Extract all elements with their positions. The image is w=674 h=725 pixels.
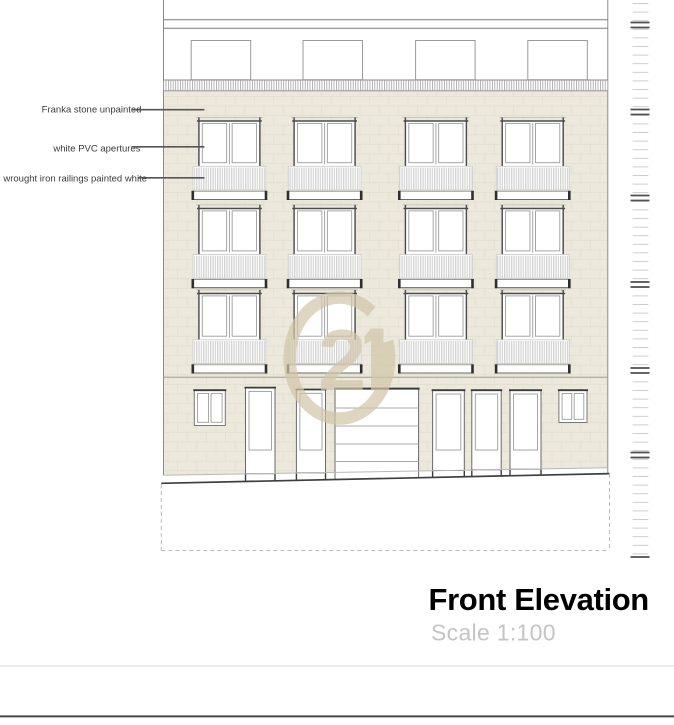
svg-text:2: 2 (318, 313, 366, 409)
svg-text:Front Elevation: Front Elevation (429, 582, 649, 617)
svg-text:Franka stone unpainted: Franka stone unpainted (42, 105, 142, 116)
svg-text:Scale 1:100: Scale 1:100 (431, 620, 556, 646)
svg-text:wrought iron railings painted: wrought iron railings painted white (2, 174, 147, 185)
svg-text:white PVC apertures: white PVC apertures (52, 144, 140, 155)
